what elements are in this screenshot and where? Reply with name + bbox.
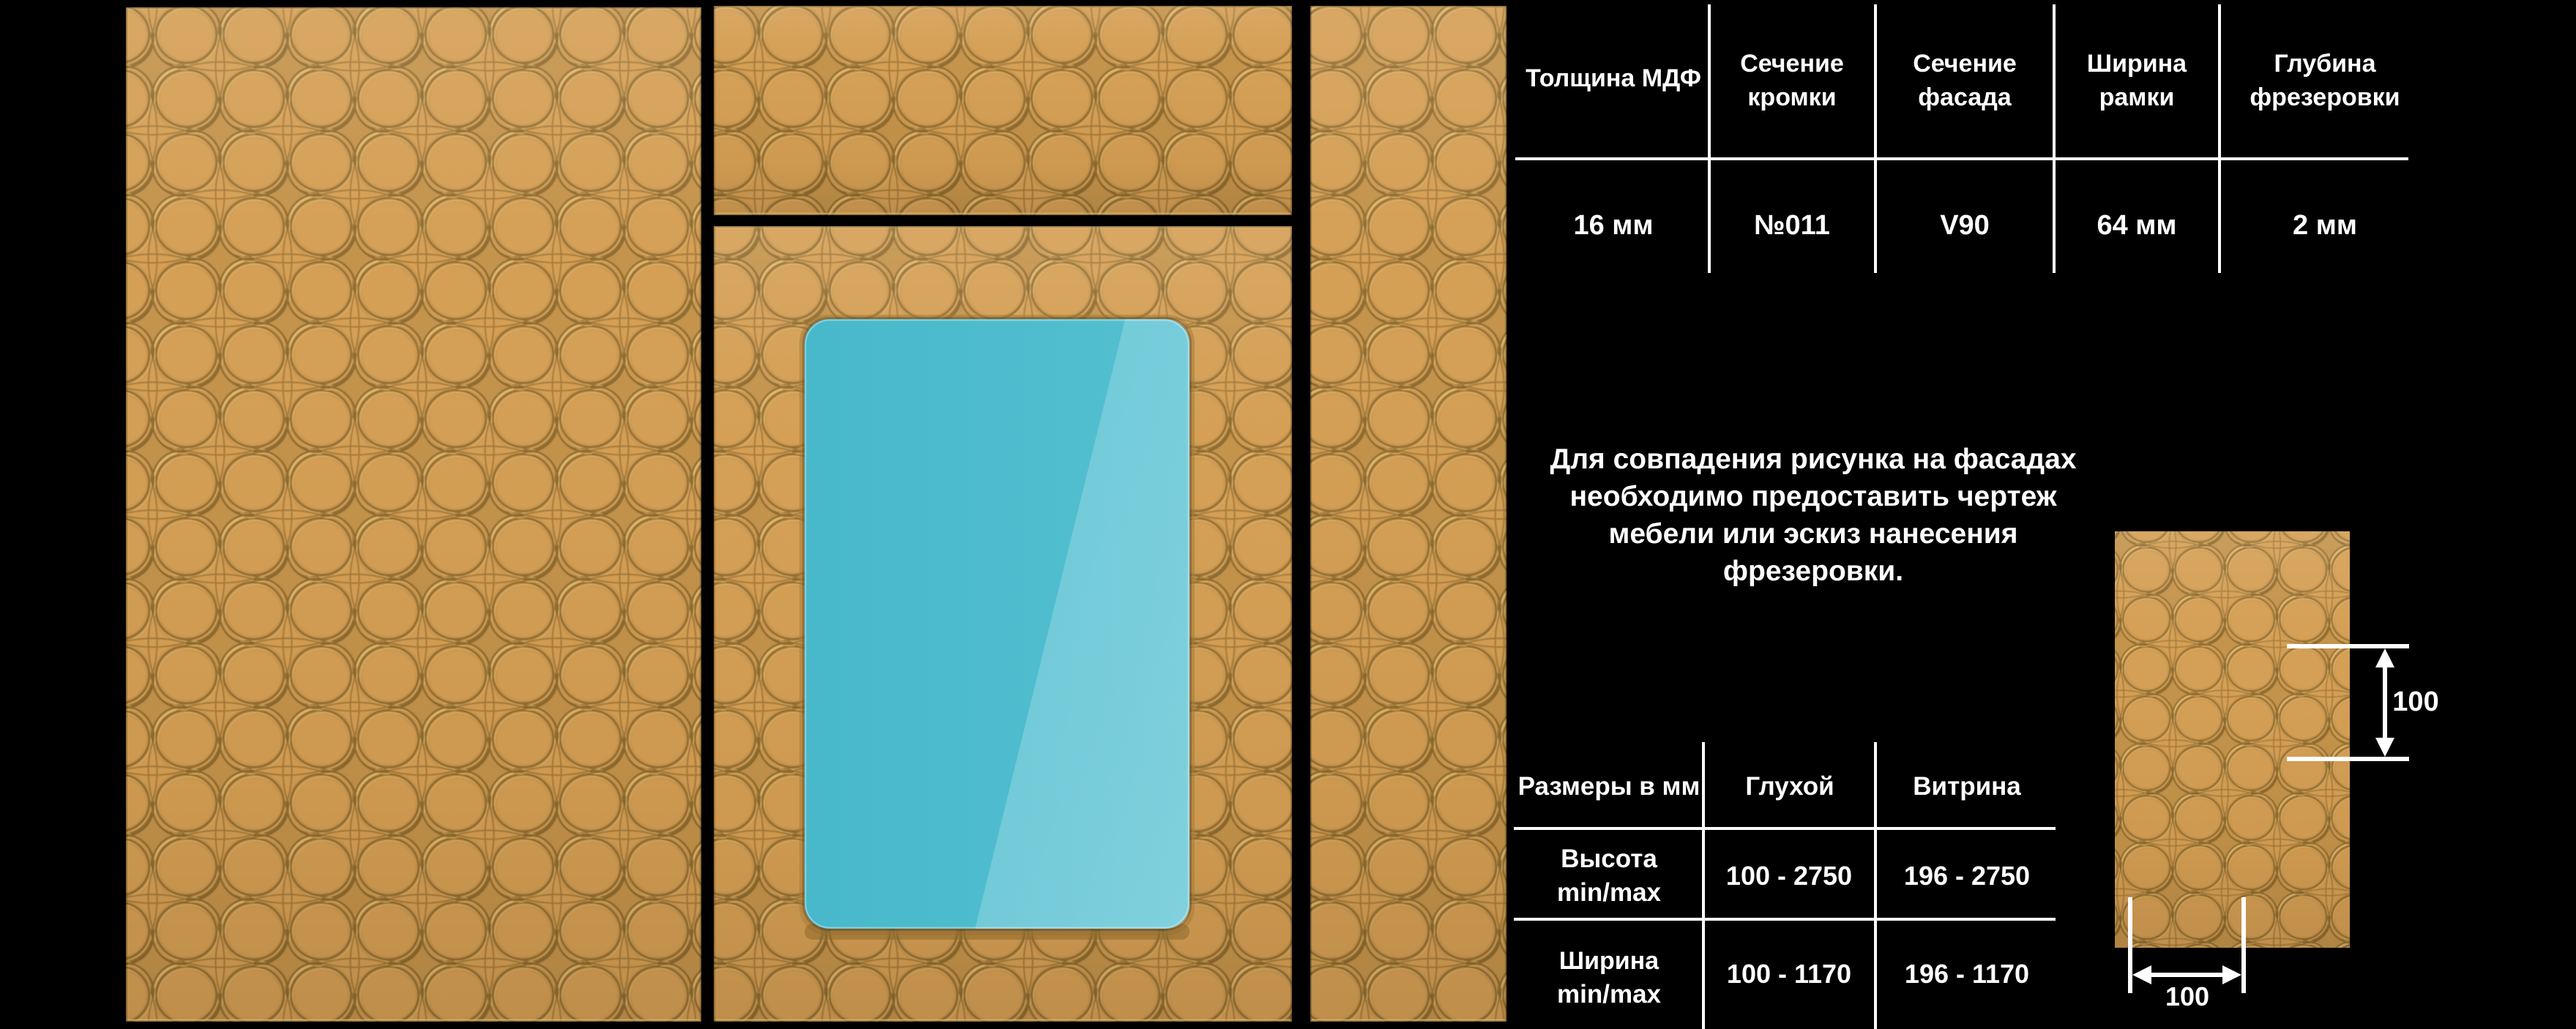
svg-text:64 мм: 64 мм [2097,210,2176,241]
svg-text:фрезеровки: фрезеровки [2250,83,2400,111]
svg-text:min/max: min/max [1557,878,1662,907]
svg-text:100 - 2750: 100 - 2750 [1726,861,1852,891]
svg-text:Высота: Высота [1561,845,1657,873]
svg-text:100: 100 [2392,686,2438,717]
svg-text:V90: V90 [1940,210,1990,241]
svg-text:196 - 1170: 196 - 1170 [1905,959,2029,989]
svg-text:№011: №011 [1754,210,1830,241]
svg-text:Витрина: Витрина [1913,772,2021,801]
svg-text:Размеры в мм: Размеры в мм [1518,772,1700,801]
svg-text:мебели или эскиз нанесения: мебели или эскиз нанесения [1608,518,2017,550]
svg-text:100: 100 [2165,981,2209,1011]
svg-text:Для совпадения рисунка на фаса: Для совпадения рисунка на фасадах [1550,444,2076,475]
svg-text:Сечение: Сечение [1740,50,1844,78]
svg-text:2 мм: 2 мм [2293,210,2357,241]
svg-text:Глубина: Глубина [2274,50,2377,78]
svg-text:рамки: рамки [2099,83,2175,111]
svg-text:Ширина: Ширина [2087,50,2187,78]
svg-text:необходимо предоставить чертеж: необходимо предоставить чертеж [1570,481,2057,512]
svg-text:фрезеровки.: фрезеровки. [1723,555,1903,587]
svg-text:кромки: кромки [1747,83,1836,111]
svg-text:Толщина МДФ: Толщина МДФ [1526,64,1701,92]
svg-text:Сечение: Сечение [1913,50,2017,78]
svg-text:196 - 2750: 196 - 2750 [1904,861,2030,891]
svg-text:100 - 1170: 100 - 1170 [1727,959,1851,989]
svg-text:16 мм: 16 мм [1573,210,1653,241]
svg-text:min/max: min/max [1557,980,1662,1009]
svg-text:фасада: фасада [1918,83,2012,111]
svg-text:Глухой: Глухой [1745,772,1834,801]
svg-text:Ширина: Ширина [1559,947,1660,975]
